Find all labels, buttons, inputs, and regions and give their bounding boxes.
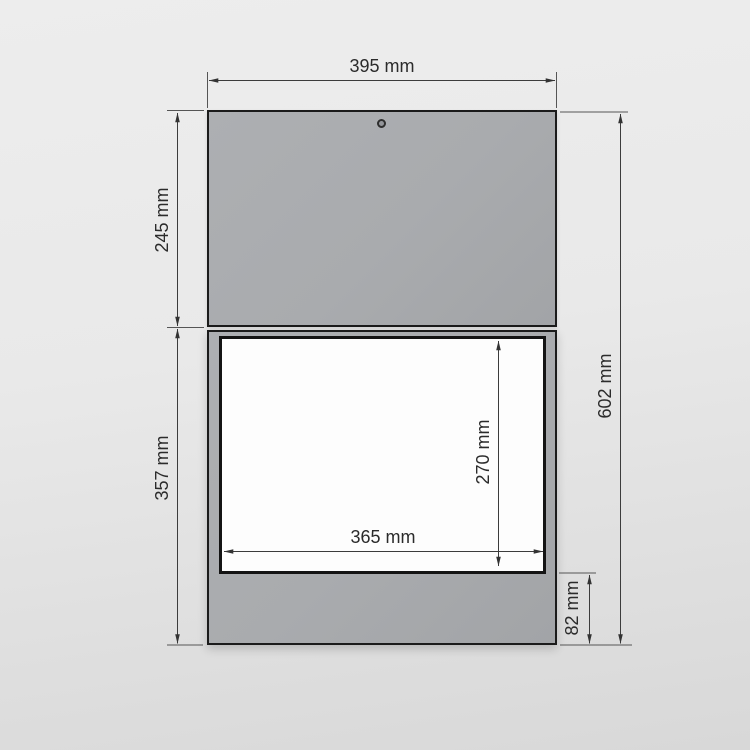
technical-drawing-canvas: 395 mm 245 mm 357 mm 602 mm 82 mm 365 mm… <box>0 0 750 750</box>
measure-lines <box>178 81 621 644</box>
dim-label-overall-height: 602 mm <box>596 353 614 418</box>
dim-label-opening-height: 270 mm <box>474 419 492 484</box>
dimension-lines <box>0 0 750 750</box>
dim-label-top-section-height: 245 mm <box>153 187 171 252</box>
extension-lines <box>167 72 632 645</box>
dim-label-base-height: 82 mm <box>563 580 581 635</box>
dim-label-bottom-section-height: 357 mm <box>153 435 171 500</box>
dim-label-opening-width: 365 mm <box>350 528 415 546</box>
dim-label-overall-width: 395 mm <box>349 57 414 75</box>
